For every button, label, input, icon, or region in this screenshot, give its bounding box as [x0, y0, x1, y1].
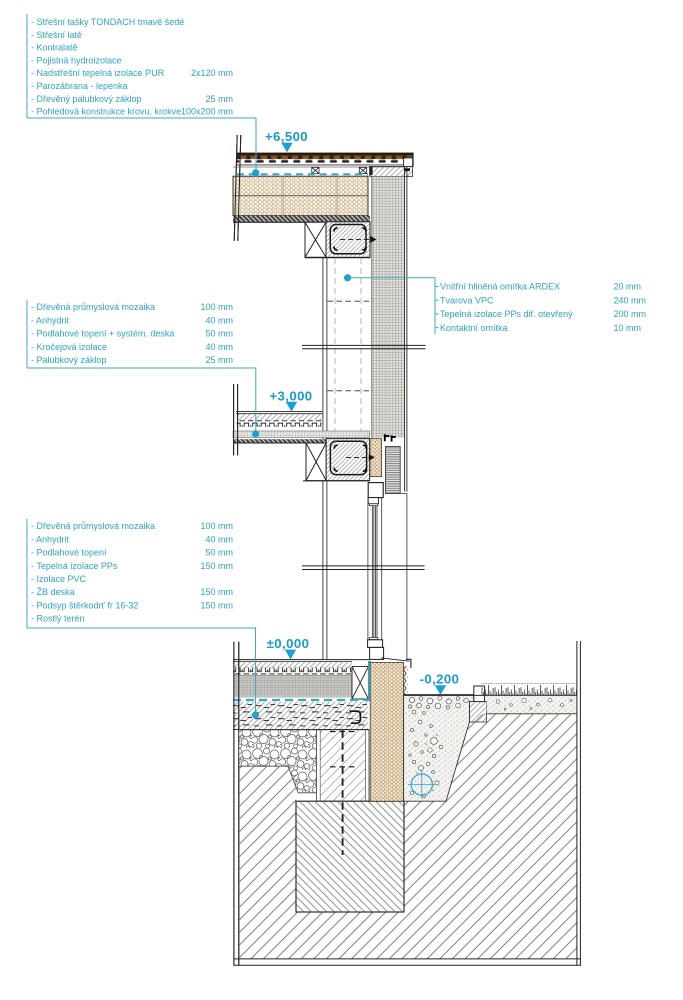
- svg-text:- Izolace PVC: - Izolace PVC: [31, 574, 87, 584]
- svg-text:±0,000: ±0,000: [267, 636, 310, 651]
- svg-text:- Dřevěná průmyslová mozaika: - Dřevěná průmyslová mozaika: [31, 521, 155, 531]
- svg-text:- Anhydrit: - Anhydrit: [31, 315, 70, 325]
- svg-text:- Kontralatě: - Kontralatě: [31, 43, 78, 53]
- svg-text:- Nadstřešní tepelná izolace P: - Nadstřešní tepelná izolace PUR: [31, 68, 165, 78]
- svg-text:100x200 mm: 100x200 mm: [181, 107, 233, 117]
- svg-text:25 mm: 25 mm: [205, 94, 233, 104]
- svg-text:50 mm: 50 mm: [205, 548, 233, 558]
- svg-text:40 mm: 40 mm: [205, 534, 233, 544]
- svg-text:40 mm: 40 mm: [205, 342, 233, 352]
- svg-text:Kontaktní omítka: Kontaktní omítka: [440, 323, 508, 333]
- svg-text:- Dřevěný palubkový záklop: - Dřevěný palubkový záklop: [31, 94, 142, 104]
- svg-text:+6,500: +6,500: [265, 129, 308, 144]
- svg-text:2x120 mm: 2x120 mm: [191, 68, 233, 78]
- svg-text:50 mm: 50 mm: [205, 329, 233, 339]
- svg-text:100 mm: 100 mm: [200, 521, 233, 531]
- svg-text:- Palubkový záklop: - Palubkový záklop: [31, 355, 107, 365]
- svg-text:150 mm: 150 mm: [200, 561, 233, 571]
- svg-text:- Dřevěná průmyslová mozaika: - Dřevěná průmyslová mozaika: [31, 302, 155, 312]
- svg-text:- Kročejová izolace: - Kročejová izolace: [31, 342, 107, 352]
- svg-text:- ŽB deska: - ŽB deska: [31, 587, 75, 597]
- svg-text:- Pohledová konstrukce krovu,: - Pohledová konstrukce krovu, krokve: [31, 107, 181, 117]
- svg-text:100 mm: 100 mm: [200, 302, 233, 312]
- svg-text:- Podlahové topení + systém. d: - Podlahové topení + systém. deska: [31, 329, 174, 339]
- svg-text:- Pojistná hydroizolace: - Pojistná hydroizolace: [31, 55, 122, 65]
- svg-text:- Střešní tašky TONDACH tmavě: - Střešní tašky TONDACH tmavě šedé: [31, 17, 184, 27]
- svg-text:240 mm: 240 mm: [614, 295, 647, 305]
- svg-text:200 mm: 200 mm: [614, 309, 647, 319]
- svg-text:-0,200: -0,200: [420, 672, 460, 687]
- svg-text:Vnitřní hliněná omítka ARDEX: Vnitřní hliněná omítka ARDEX: [440, 282, 560, 292]
- svg-text:150 mm: 150 mm: [200, 600, 233, 610]
- svg-text:Tvarova VPC: Tvarova VPC: [440, 295, 494, 305]
- svg-text:- Rostlý terén: - Rostlý terén: [31, 614, 85, 624]
- svg-text:20 mm: 20 mm: [614, 282, 642, 292]
- svg-text:Tepelná izolace PPs dif. otevř: Tepelná izolace PPs dif. otevřený: [440, 309, 573, 319]
- svg-text:- Podsyp štěrkodrť fr 16-32: - Podsyp štěrkodrť fr 16-32: [31, 600, 138, 610]
- svg-text:- Anhydrit: - Anhydrit: [31, 534, 70, 544]
- svg-text:10 mm: 10 mm: [614, 323, 642, 333]
- svg-text:25 mm: 25 mm: [205, 355, 233, 365]
- svg-text:- Parozábrana - lepenka: - Parozábrana - lepenka: [31, 81, 128, 91]
- svg-text:+3,000: +3,000: [269, 388, 312, 403]
- svg-text:- Podlahové topení: - Podlahové topení: [31, 548, 107, 558]
- svg-text:- Střešní latě: - Střešní latě: [31, 30, 82, 40]
- svg-text:150 mm: 150 mm: [200, 587, 233, 597]
- svg-text:40 mm: 40 mm: [205, 315, 233, 325]
- svg-text:- Tepelná izolace PPs: - Tepelná izolace PPs: [31, 561, 118, 571]
